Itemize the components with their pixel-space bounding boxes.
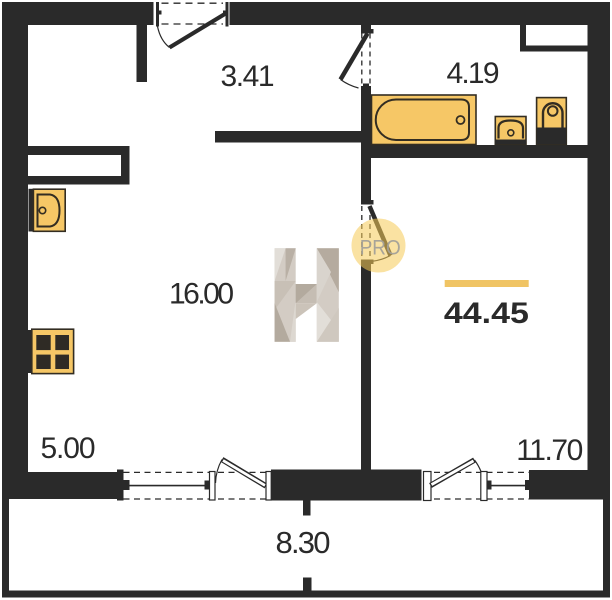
- svg-text:11.70: 11.70: [516, 434, 583, 467]
- svg-text:5.00: 5.00: [41, 432, 96, 465]
- svg-text:16.00: 16.00: [169, 277, 234, 310]
- svg-text:4.19: 4.19: [447, 57, 500, 90]
- svg-text:44.45: 44.45: [444, 297, 529, 330]
- svg-text:8.30: 8.30: [276, 525, 331, 560]
- svg-text:3.41: 3.41: [221, 60, 275, 93]
- svg-text:PRO: PRO: [360, 237, 401, 260]
